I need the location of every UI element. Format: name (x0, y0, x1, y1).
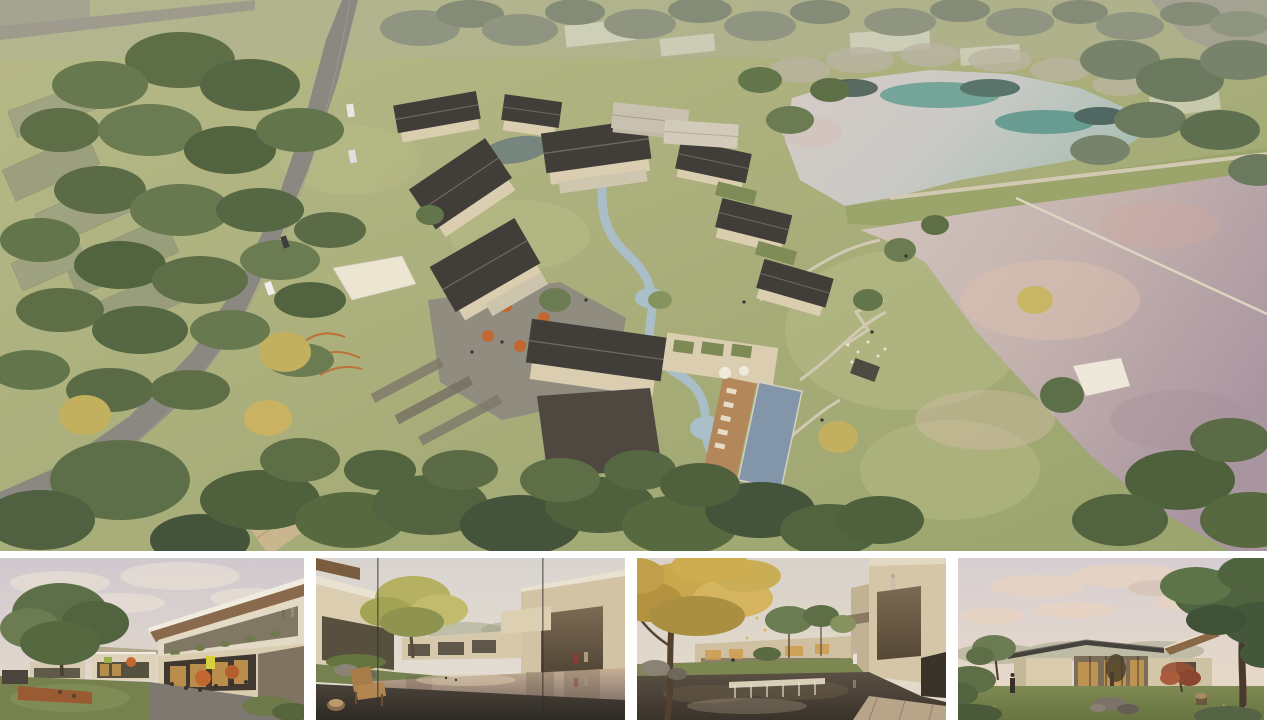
thumbnail-water-courtyard (316, 558, 625, 720)
standing-person (853, 654, 857, 664)
lawn-figure (1010, 678, 1015, 693)
water-courtyard-svg (316, 558, 625, 720)
walking-person-red (574, 654, 578, 664)
mid-umbrella (126, 657, 136, 667)
building-notch (877, 586, 921, 660)
boulder-2 (667, 668, 687, 680)
window-mullion-1 (377, 558, 379, 720)
presentation-board (0, 0, 1267, 724)
mid-building (88, 646, 158, 680)
cafe-umbrella-2 (225, 665, 239, 679)
lawn-pavilion-svg (958, 558, 1264, 720)
aerial-svg (0, 0, 1267, 551)
aerial-masterplan-render (0, 0, 1267, 551)
interior-person (1110, 672, 1114, 686)
interior-tree (1106, 654, 1126, 682)
balcony-person-1 (282, 610, 285, 619)
autumn-courtyard-svg (637, 558, 946, 720)
thumbnail-plaza-cafe (0, 558, 304, 720)
walking-person-tan (584, 652, 588, 662)
green-sign (104, 657, 112, 663)
window-mullion-2 (542, 558, 544, 720)
thumbnail-autumn-courtyard (637, 558, 946, 720)
boulder-1 (640, 660, 670, 676)
yellow-sign (206, 656, 215, 669)
cafe-umbrella-1 (195, 670, 211, 686)
grill-structure (2, 670, 28, 684)
thumbnail-lawn-pavilion (958, 558, 1264, 720)
tree-stump (1195, 693, 1207, 705)
plaza-cafe-svg (0, 558, 304, 720)
dark-arcade (921, 652, 946, 698)
terrace-person (891, 578, 895, 589)
stump-stool (327, 699, 345, 711)
balcony-person-2 (291, 608, 294, 617)
